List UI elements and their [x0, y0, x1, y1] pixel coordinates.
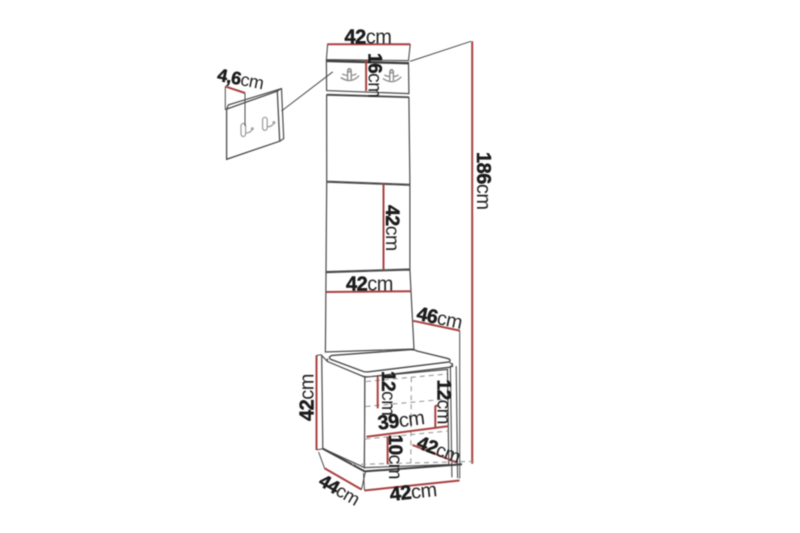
svg-text:42cm: 42cm: [346, 274, 393, 296]
svg-text:10cm: 10cm: [384, 435, 405, 479]
svg-text:42cm: 42cm: [345, 27, 392, 49]
svg-text:16cm: 16cm: [364, 53, 385, 97]
svg-text:42cm: 42cm: [381, 205, 403, 251]
svg-text:12cm: 12cm: [377, 371, 398, 415]
svg-text:186cm: 186cm: [472, 152, 494, 210]
svg-text:12cm: 12cm: [433, 380, 454, 424]
svg-text:42cm: 42cm: [296, 374, 318, 421]
